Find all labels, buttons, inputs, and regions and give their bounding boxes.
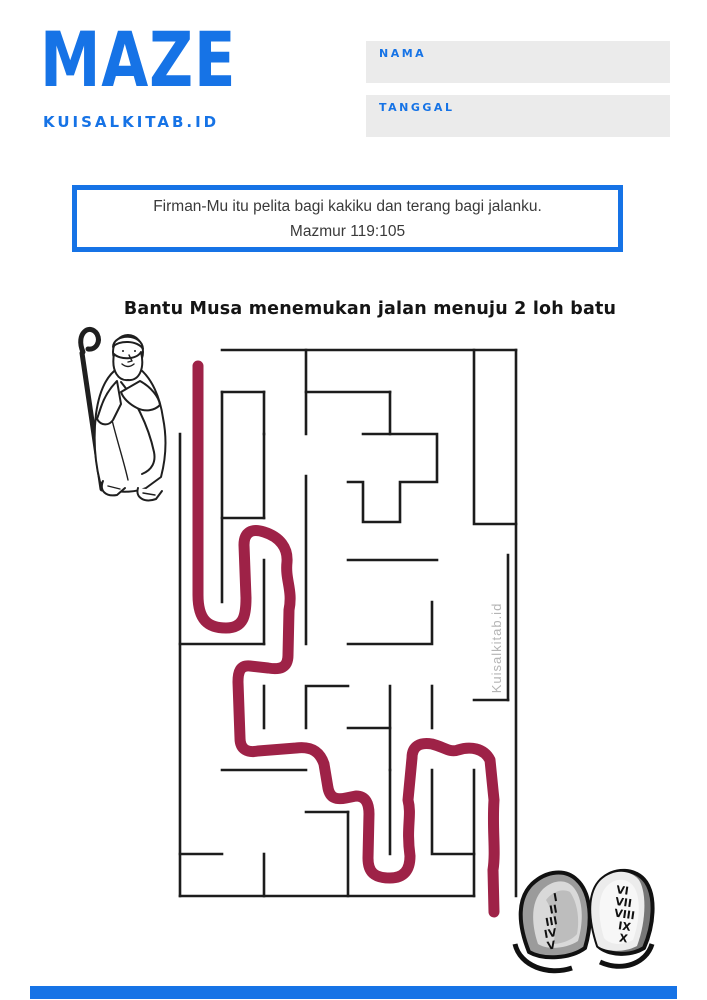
tablet-left: IIIIIIIVV	[521, 873, 590, 958]
maze-artwork: Kuisalkitab.id IIIIIIIVV VIVIIVIIIIXX	[0, 0, 707, 1000]
solution-path[interactable]	[198, 366, 494, 912]
footer-accent-bar	[30, 986, 677, 999]
tablet-right: VIVIIVIIIIXX	[591, 871, 652, 954]
tablets-illustration: IIIIIIIVV VIVIIVIIIIXX	[515, 871, 653, 971]
watermark: Kuisalkitab.id	[489, 603, 504, 694]
moses-illustration	[81, 329, 166, 500]
